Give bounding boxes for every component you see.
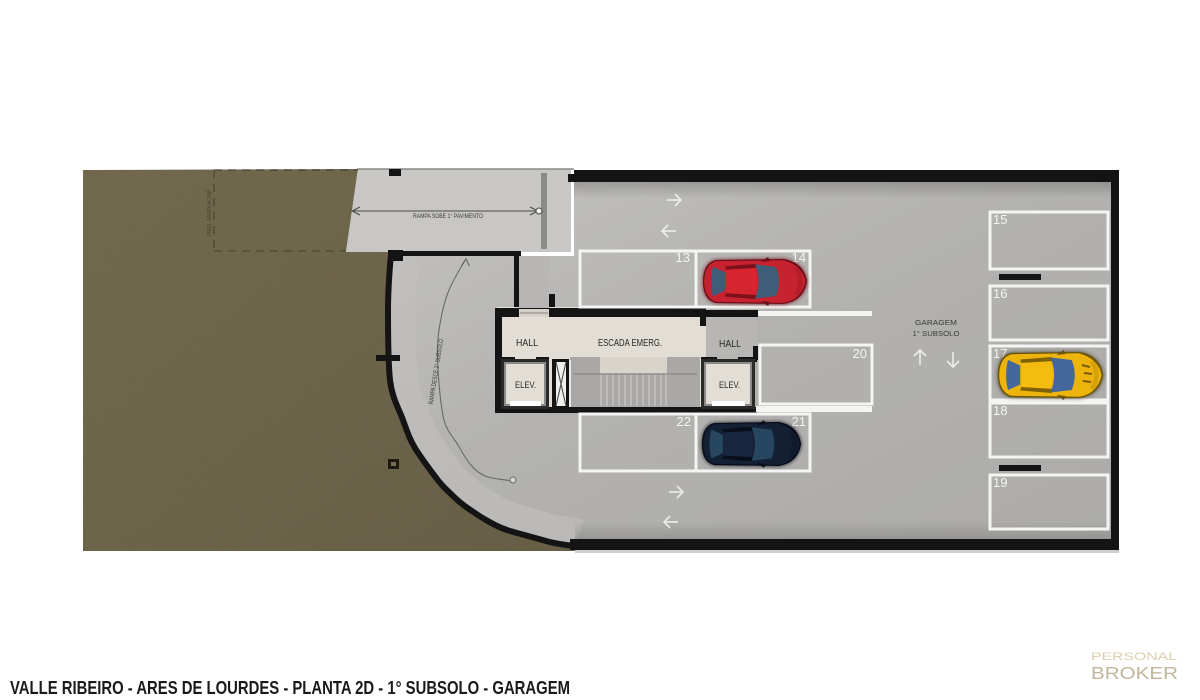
svg-text:HALL: HALL bbox=[719, 338, 741, 350]
svg-text:19: 19 bbox=[993, 475, 1007, 490]
svg-text:18: 18 bbox=[993, 403, 1007, 418]
svg-text:22: 22 bbox=[677, 414, 691, 429]
svg-text:VALLE RIBEIRO - ARES DE LOURDE: VALLE RIBEIRO - ARES DE LOURDES - PLANTA… bbox=[10, 677, 570, 698]
svg-text:21: 21 bbox=[792, 414, 806, 429]
svg-text:ESCADA EMERG.: ESCADA EMERG. bbox=[598, 337, 662, 349]
svg-text:13: 13 bbox=[676, 250, 690, 265]
svg-text:20: 20 bbox=[853, 346, 867, 361]
svg-text:PROJ. RAMPA ACIMA: PROJ. RAMPA ACIMA bbox=[207, 190, 213, 236]
svg-text:1° SUBSOLO: 1° SUBSOLO bbox=[913, 329, 960, 338]
svg-text:ELEV.: ELEV. bbox=[719, 380, 740, 390]
svg-text:HALL: HALL bbox=[516, 337, 538, 349]
svg-text:RAMPA SOBE 1° PAVIMENTO: RAMPA SOBE 1° PAVIMENTO bbox=[413, 212, 483, 220]
svg-text:BROKER: BROKER bbox=[1091, 663, 1178, 683]
svg-text:16: 16 bbox=[993, 286, 1007, 301]
svg-text:ELEV.: ELEV. bbox=[515, 380, 536, 390]
svg-text:GARAGEM: GARAGEM bbox=[915, 318, 957, 327]
svg-text:PERSONAL: PERSONAL bbox=[1091, 651, 1177, 663]
svg-text:15: 15 bbox=[993, 212, 1007, 227]
